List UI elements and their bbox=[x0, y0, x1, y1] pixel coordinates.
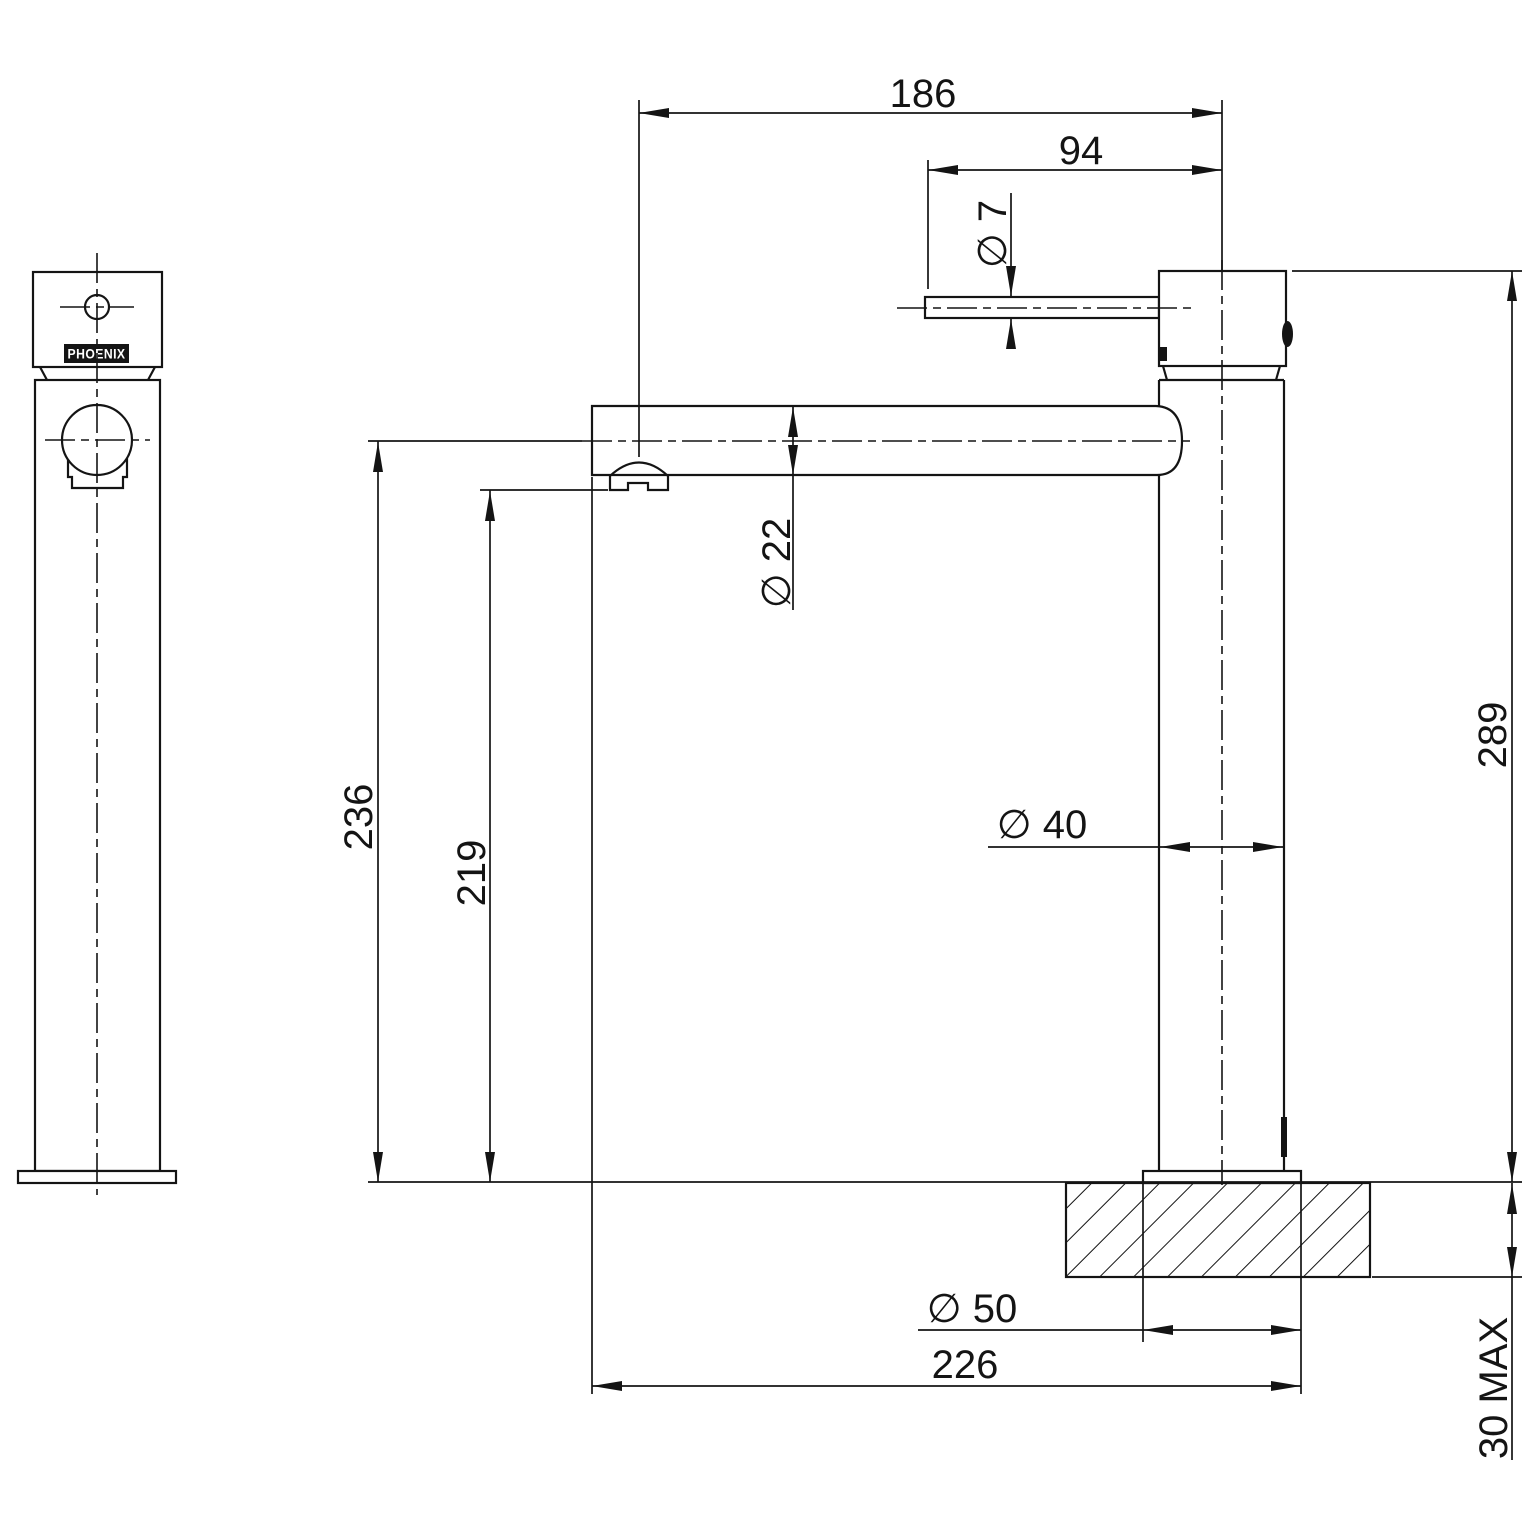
centerlines bbox=[45, 253, 1222, 1195]
temperature-button bbox=[1282, 321, 1293, 347]
front-view bbox=[592, 271, 1370, 1277]
head-detail-mark bbox=[1159, 347, 1167, 361]
dim-label-overall-height: 289 bbox=[1471, 702, 1515, 769]
dimension-body-diameter: ∅ 40 bbox=[988, 803, 1283, 852]
dimension-lever-diameter: ∅ 7 bbox=[971, 193, 1016, 349]
dim-label-max-mounting-thickness: 30 MAX bbox=[1472, 1317, 1516, 1459]
dim-label-handle-length: 94 bbox=[1059, 129, 1104, 173]
dim-label-height-outlet: 219 bbox=[450, 840, 494, 907]
dim-label-base-diameter: ∅ 50 bbox=[927, 1287, 1017, 1331]
dimension-max-mounting-thickness: 30 MAX bbox=[1472, 1183, 1517, 1460]
dim-label-body-diameter: ∅ 40 bbox=[997, 803, 1087, 847]
dim-label-height-spout-centre: 236 bbox=[337, 784, 381, 851]
dim-label-spout-diameter: ∅ 22 bbox=[755, 518, 799, 608]
dimension-height-spout-centre: 236 bbox=[337, 441, 582, 1182]
dimension-spout-reach: 186 bbox=[639, 72, 1222, 457]
drawing-sheet: PHOENIX 186 94 bbox=[0, 0, 1536, 1536]
grub-screw-mark bbox=[1281, 1117, 1287, 1157]
dim-label-overall-depth: 226 bbox=[932, 1343, 999, 1387]
dimension-height-outlet: 219 bbox=[450, 490, 608, 1182]
dim-label-spout-reach: 186 bbox=[890, 72, 957, 116]
dimension-overall-height: 289 bbox=[1292, 271, 1522, 1182]
bench-section bbox=[1066, 1183, 1370, 1277]
technical-drawing: PHOENIX 186 94 bbox=[0, 0, 1536, 1536]
dim-label-lever-diameter: ∅ 7 bbox=[971, 200, 1015, 268]
